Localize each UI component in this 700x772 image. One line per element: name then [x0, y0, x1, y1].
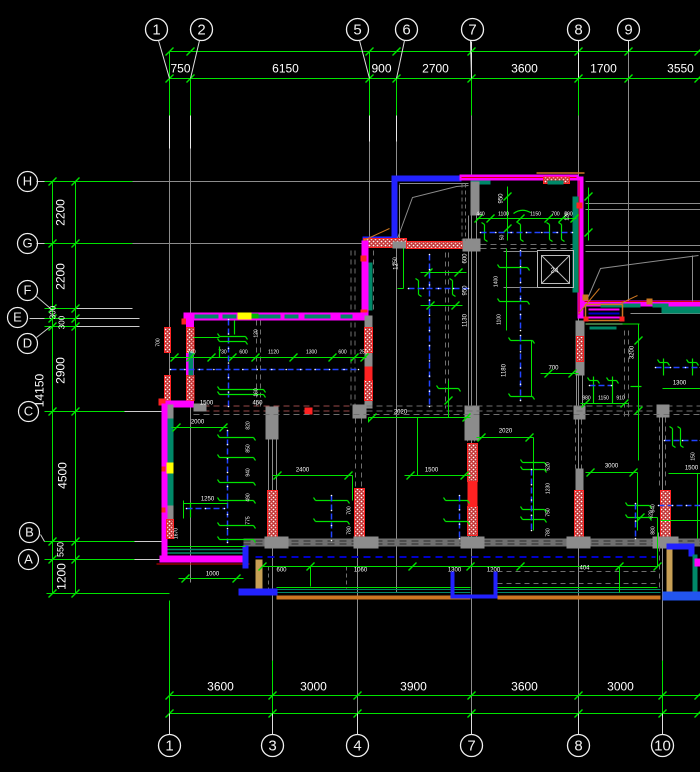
svg-text:1100: 1100	[498, 212, 509, 218]
svg-text:820: 820	[246, 421, 252, 430]
svg-text:980: 980	[582, 396, 591, 402]
svg-text:1: 1	[165, 738, 173, 755]
svg-text:1200: 1200	[487, 568, 501, 574]
svg-text:300: 300	[58, 315, 67, 329]
svg-text:1250: 1250	[201, 497, 215, 503]
svg-text:1100: 1100	[497, 314, 503, 325]
svg-text:1500: 1500	[200, 401, 214, 407]
svg-text:600: 600	[239, 350, 248, 356]
svg-text:440: 440	[476, 212, 485, 218]
svg-text:1: 1	[152, 22, 160, 39]
svg-text:1670: 1670	[174, 528, 180, 539]
svg-text:4: 4	[353, 738, 361, 755]
svg-text:1150: 1150	[530, 212, 541, 218]
svg-text:550: 550	[56, 542, 66, 557]
svg-text:2020: 2020	[394, 410, 408, 416]
svg-text:H: H	[23, 174, 32, 189]
svg-text:1500: 1500	[685, 466, 699, 472]
svg-text:640: 640	[651, 504, 657, 513]
svg-text:3600: 3600	[511, 680, 538, 694]
svg-text:750: 750	[170, 62, 190, 76]
svg-text:G: G	[22, 236, 32, 251]
svg-text:8: 8	[574, 738, 582, 755]
svg-text:1120: 1120	[268, 350, 279, 356]
svg-text:2: 2	[197, 22, 205, 39]
svg-text:740: 740	[187, 350, 196, 356]
svg-text:150: 150	[691, 452, 697, 461]
svg-text:2200: 2200	[54, 199, 68, 226]
svg-text:E: E	[13, 310, 22, 325]
svg-text:490: 490	[246, 493, 252, 502]
svg-text:1060: 1060	[354, 568, 368, 574]
svg-text:10: 10	[654, 738, 671, 755]
svg-text:7: 7	[468, 22, 476, 39]
svg-text:9: 9	[624, 22, 632, 39]
svg-text:120: 120	[254, 329, 260, 338]
svg-text:2200: 2200	[54, 263, 68, 290]
svg-text:750: 750	[546, 508, 552, 517]
svg-text:520: 520	[546, 462, 552, 471]
svg-text:600: 600	[338, 350, 347, 356]
svg-text:1000: 1000	[206, 572, 220, 578]
svg-text:1230: 1230	[546, 483, 552, 494]
svg-text:950: 950	[463, 285, 469, 296]
svg-text:1150: 1150	[598, 396, 609, 402]
svg-text:700: 700	[551, 212, 560, 218]
svg-text:3: 3	[268, 738, 276, 755]
svg-text:2700: 2700	[422, 62, 449, 76]
svg-text:24: 24	[551, 268, 559, 275]
svg-text:3200: 3200	[630, 345, 636, 359]
svg-text:2900: 2900	[54, 357, 68, 384]
svg-text:6150: 6150	[272, 62, 299, 76]
svg-text:850: 850	[246, 444, 252, 453]
svg-text:7: 7	[467, 738, 475, 755]
svg-text:775: 775	[246, 516, 252, 525]
svg-text:D: D	[23, 336, 32, 351]
svg-text:12: 12	[394, 263, 400, 270]
svg-text:3900: 3900	[400, 680, 427, 694]
svg-text:6: 6	[402, 22, 410, 39]
svg-text:600: 600	[463, 253, 469, 264]
svg-text:450: 450	[252, 401, 263, 407]
svg-text:250: 250	[359, 350, 368, 356]
svg-text:1500: 1500	[425, 468, 439, 474]
svg-text:3000: 3000	[300, 680, 327, 694]
svg-text:4500: 4500	[56, 462, 70, 489]
svg-text:3000: 3000	[607, 680, 634, 694]
svg-text:300: 300	[49, 305, 58, 319]
svg-text:940: 940	[246, 468, 252, 477]
svg-text:1180: 1180	[502, 363, 508, 377]
svg-text:700: 700	[347, 506, 353, 515]
svg-text:880: 880	[651, 526, 657, 535]
svg-text:F: F	[24, 283, 32, 298]
svg-text:1400: 1400	[494, 276, 500, 287]
svg-text:404: 404	[579, 566, 590, 572]
svg-text:B: B	[25, 525, 34, 540]
svg-text:780: 780	[546, 528, 552, 537]
svg-text:700: 700	[548, 366, 559, 372]
svg-text:900: 900	[371, 62, 391, 76]
svg-text:160: 160	[254, 388, 260, 397]
svg-text:50: 50	[500, 235, 506, 241]
svg-text:600: 600	[276, 568, 287, 574]
svg-text:C: C	[24, 404, 33, 419]
svg-text:950: 950	[499, 193, 505, 204]
svg-text:14150: 14150	[33, 373, 47, 407]
svg-text:1300: 1300	[448, 568, 462, 574]
svg-text:1700: 1700	[590, 62, 617, 76]
svg-text:780: 780	[347, 526, 353, 535]
svg-text:2400: 2400	[296, 468, 310, 474]
svg-text:2000: 2000	[191, 420, 205, 426]
svg-text:3600: 3600	[511, 62, 538, 76]
svg-text:A: A	[24, 552, 33, 567]
svg-text:910: 910	[616, 396, 625, 402]
svg-text:700: 700	[156, 338, 162, 347]
svg-text:3550: 3550	[667, 62, 694, 76]
svg-text:1300: 1300	[673, 381, 687, 387]
svg-text:120: 120	[565, 212, 571, 221]
svg-text:1300: 1300	[306, 350, 317, 356]
svg-text:8: 8	[574, 22, 582, 39]
svg-text:1200: 1200	[55, 563, 69, 590]
svg-text:1130: 1130	[463, 313, 469, 327]
svg-text:5: 5	[353, 22, 361, 39]
svg-text:3000: 3000	[605, 464, 619, 470]
svg-text:2020: 2020	[499, 429, 513, 435]
svg-text:3600: 3600	[207, 680, 234, 694]
